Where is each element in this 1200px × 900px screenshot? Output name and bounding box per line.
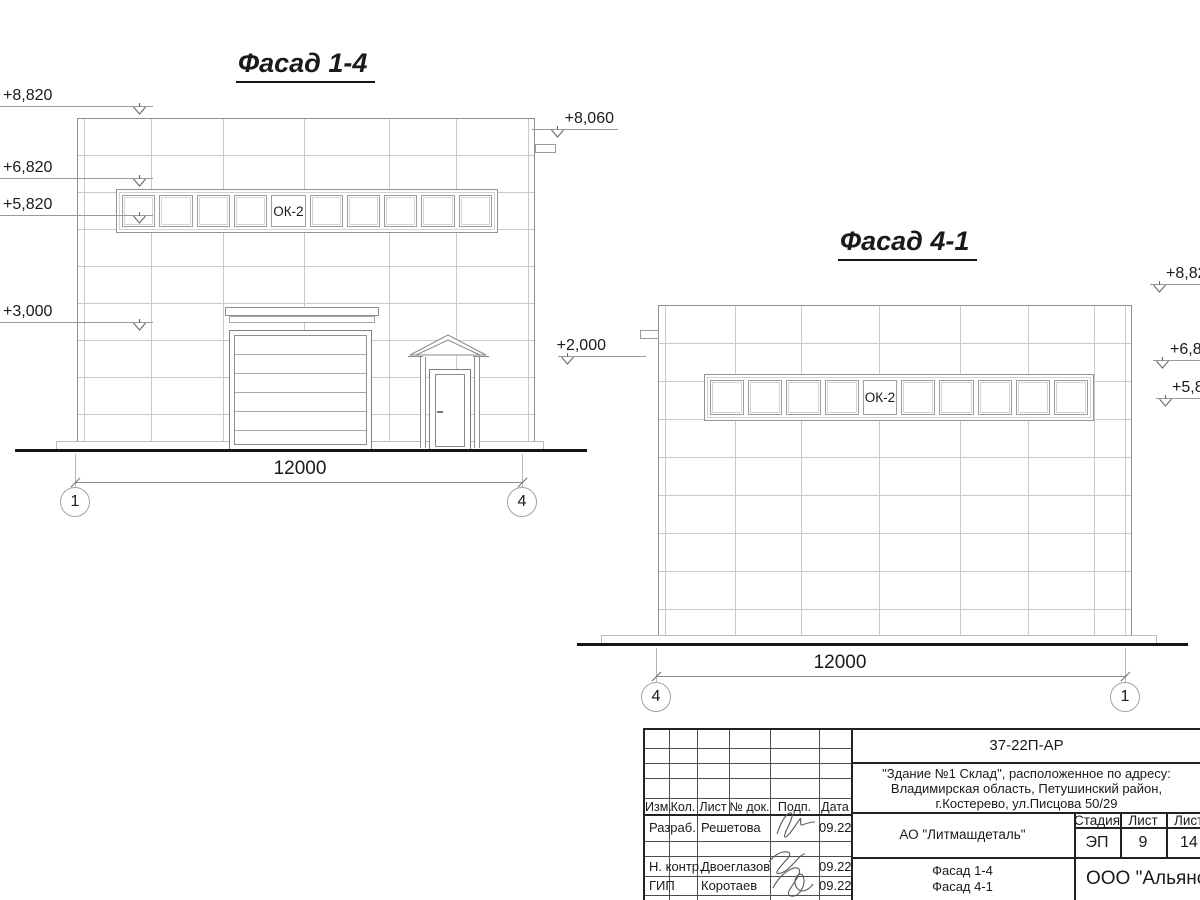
garage-door-lintel (229, 316, 375, 323)
signature (769, 806, 817, 842)
panel-edge-line (1125, 306, 1126, 644)
project-address-line2: Владимирская область, Петушинский район, (855, 781, 1198, 796)
col-header-izm: Изм. (645, 800, 669, 814)
entry-door (429, 369, 471, 450)
dimension-text: 12000 (790, 652, 890, 674)
axis-bubble-1: 1 (60, 487, 90, 517)
elevation-label: +6,820 (1170, 341, 1200, 359)
elevation-symbol-icon (550, 126, 565, 138)
window-pane: ОК-2 (271, 195, 305, 227)
elevation-symbol-icon (560, 353, 575, 365)
sheet-name-line1: Фасад 1-4 (851, 863, 1074, 878)
window-pane (459, 195, 492, 227)
project-address-line3: г.Костерево, ул.Писцова 50/29 (855, 796, 1198, 811)
dimension-line (656, 676, 1125, 677)
sig-role: Н. контр. (649, 859, 703, 874)
title-block-line (645, 748, 851, 749)
elevation-symbol-icon (1152, 281, 1167, 293)
title-block-line (851, 762, 1200, 764)
canopy-post (420, 357, 426, 448)
panel-joint (801, 306, 802, 644)
panel-joint (735, 306, 736, 644)
elevation-symbol-icon (132, 319, 147, 331)
elevation-mark: +8,820 (1150, 262, 1200, 285)
col-header-ndok: № док. (729, 800, 770, 814)
window-pane (159, 195, 192, 227)
sheets-header: Листов (1174, 813, 1200, 828)
panel-joint (1028, 306, 1029, 644)
window-pane (234, 195, 267, 227)
sheets-total: 14 (1180, 834, 1198, 852)
sig-role: Разраб. (649, 820, 696, 835)
elevation-mark: +5,820 (0, 193, 153, 216)
stage-value: ЭП (1074, 834, 1120, 852)
window-pane (384, 195, 417, 227)
elevation-mark: +6,820 (0, 156, 153, 179)
window-pane (421, 195, 454, 227)
window-pane: ОК-2 (863, 380, 897, 415)
panel-joint (223, 119, 224, 449)
window-pane (710, 380, 744, 415)
title-block-line (645, 778, 851, 779)
window-pane (197, 195, 230, 227)
dimension-text: 12000 (250, 458, 350, 480)
window-band-ok2: ОК-2 (116, 189, 498, 233)
ground-line (15, 449, 587, 452)
window-pane (978, 380, 1012, 415)
elevation-label: +5,820 (1172, 379, 1200, 397)
entry-door-canopy (408, 332, 489, 358)
sheet-name-line2: Фасад 4-1 (851, 879, 1074, 894)
project-address-line1: "Здание №1 Склад", расположенное по адре… (855, 766, 1198, 781)
elevation-symbol-icon (132, 175, 147, 187)
window-pane (901, 380, 935, 415)
elevation-label: +8,820 (1166, 265, 1200, 283)
title-block-line (645, 814, 851, 816)
title-block-line (851, 857, 1200, 859)
sheet-number: 9 (1120, 834, 1166, 852)
col-header-list: Лист (697, 800, 729, 814)
title-block: Изм. Кол. Лист № док. Подп. Дата Разраб.… (643, 728, 1200, 900)
window-pane (1016, 380, 1050, 415)
doc-code: 37-22П-АР (851, 737, 1200, 754)
window-pane (825, 380, 859, 415)
ground-line (577, 643, 1188, 646)
title-block-line (645, 798, 851, 799)
elevation-symbol-icon (1158, 395, 1173, 407)
axis-number: 1 (1121, 688, 1130, 706)
elevation-mark: +6,820 (1153, 338, 1200, 361)
elevation-label: +6,820 (3, 159, 52, 177)
window-pane (347, 195, 380, 227)
elevation-mark: +2,000 (558, 334, 646, 357)
elevation-label: +8,820 (3, 87, 52, 105)
window-pane (786, 380, 820, 415)
elevation-symbol-icon (132, 212, 147, 224)
axis-bubble-1: 1 (1110, 682, 1140, 712)
title-block-line (1166, 812, 1168, 857)
panel-joint (879, 306, 880, 644)
elevation-mark: +3,000 (0, 300, 153, 323)
garage-door-lintel (225, 307, 379, 316)
elevation-mark: +8,820 (0, 84, 153, 107)
facade-1-4-title: Фасад 1-4 (236, 48, 375, 83)
elevation-label: +8,060 (565, 110, 614, 128)
client-name: АО "Литмашдеталь" (851, 827, 1074, 842)
elevation-mark: +5,820 (1156, 376, 1200, 399)
window-band-ok2: ОК-2 (704, 374, 1094, 421)
axis-number: 4 (518, 493, 527, 511)
stage-header: Стадия (1074, 813, 1120, 828)
gutter-outlet (640, 330, 659, 339)
sig-name: Коротаев (701, 878, 757, 893)
axis-bubble-4: 4 (507, 487, 537, 517)
elevation-mark: +8,060 (532, 107, 618, 130)
axis-number: 4 (652, 688, 661, 706)
col-header-data: Дата (819, 800, 851, 814)
panel-joint (960, 306, 961, 644)
window-label: ОК-2 (272, 204, 304, 219)
window-pane (939, 380, 973, 415)
axis-bubble-4: 4 (641, 682, 671, 712)
axis-number: 1 (71, 493, 80, 511)
title-block-line (645, 841, 851, 842)
entry-door-leaf (435, 374, 465, 447)
sig-name: Решетова (701, 820, 761, 835)
facade-4-1-elevation: ОК-2 (658, 305, 1132, 645)
window-pane (748, 380, 782, 415)
dimension-line (75, 482, 522, 483)
signature (763, 846, 821, 900)
elevation-symbol-icon (1155, 357, 1170, 369)
elevation-label: +3,000 (3, 303, 52, 321)
title-block-line (645, 763, 851, 764)
sig-date: 09.22 (819, 878, 851, 893)
drawing-sheet: Фасад 1-4 ОК-2 (0, 0, 1200, 900)
sig-name: Двоеглазов (701, 859, 770, 874)
window-pane (310, 195, 343, 227)
company-name: ООО "Альянс" (1086, 868, 1200, 890)
window-label: ОК-2 (864, 390, 896, 405)
canopy-post (474, 357, 480, 448)
door-handle (437, 411, 443, 413)
panel-edge-line (665, 306, 666, 644)
gutter-outlet (535, 144, 556, 153)
garage-door-slats (234, 335, 367, 445)
garage-door (229, 330, 372, 450)
sheet-header: Лист (1120, 813, 1166, 828)
panel-edge-line (528, 119, 529, 449)
sig-role: ГИП (649, 878, 675, 893)
sig-date: 09.22 (819, 859, 851, 874)
sig-date: 09.22 (819, 820, 851, 835)
panel-joint (389, 119, 390, 449)
window-pane (1054, 380, 1088, 415)
facade-4-1-title: Фасад 4-1 (838, 226, 977, 261)
elevation-symbol-icon (132, 103, 147, 115)
elevation-label: +5,820 (3, 196, 52, 214)
panel-joint (1094, 306, 1095, 644)
col-header-kol: Кол. (669, 800, 697, 814)
